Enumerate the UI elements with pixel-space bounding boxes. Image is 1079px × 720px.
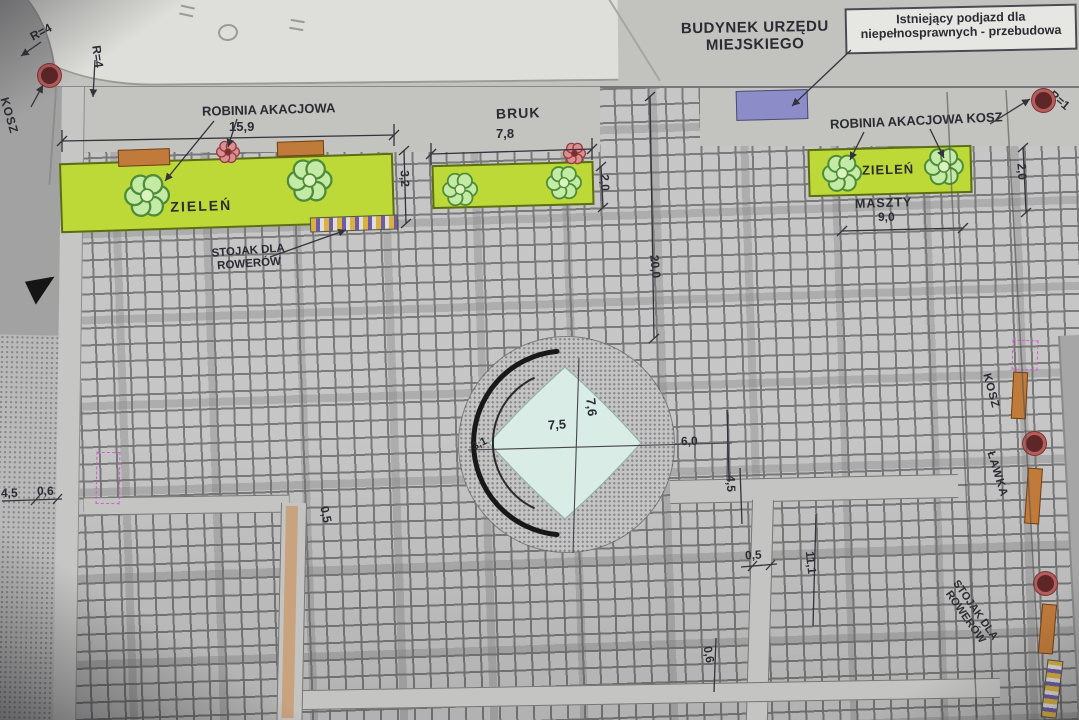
shrub-icon xyxy=(545,164,582,201)
dim-west-walk-b: 0,6 xyxy=(37,485,54,498)
bench xyxy=(1011,372,1028,420)
ramp-note-line2: niepełnosprawnych - przebudowa xyxy=(847,23,1075,42)
building-label: BUDYNEK URZĘDU MIEJSKIEGO xyxy=(660,18,851,54)
dim-plaza-depth: 20,0 xyxy=(647,254,663,279)
dim-pavement-length: 7,8 xyxy=(496,127,514,141)
shrub-icon xyxy=(923,146,964,187)
bike-rack-left-label: STOJAK DLA ROWERÓW xyxy=(211,242,286,272)
dim-east-bottom: 0,6 xyxy=(700,645,716,664)
bench xyxy=(118,148,171,167)
accessible-ramp xyxy=(736,89,809,121)
dim-west-path-edge: 0,5 xyxy=(317,505,333,524)
dim-tree-row-length: 15,9 xyxy=(229,120,254,134)
ramp-note: Istniejący podjazd dla niepełnosprawnych… xyxy=(845,4,1078,55)
building-label-line2: MIEJSKIEGO xyxy=(660,35,850,55)
dim-fountain-width: 7,5 xyxy=(548,417,567,433)
survey-mark xyxy=(1011,340,1038,371)
trash-bin-icon xyxy=(1023,432,1046,455)
tree-icon xyxy=(215,139,241,165)
greenery-right-label: ZIELEŃ xyxy=(862,162,915,178)
pavement-label: BRUK xyxy=(496,105,541,122)
tree-icon xyxy=(562,141,587,166)
building-facade-line xyxy=(600,86,1079,88)
dim-fountain-height: 7,6 xyxy=(583,397,599,416)
trash-bin-icon xyxy=(1034,572,1057,595)
dim-masts-spacing: 9,0 xyxy=(878,211,895,224)
shrub-icon xyxy=(822,153,863,194)
survey-mark xyxy=(96,452,121,504)
site-plan: 7,5 7,6 3,1 ZIELEŃ ZIELEŃ Istniejący pod… xyxy=(0,0,1079,720)
dim-green-right-width: 2,0 xyxy=(1014,163,1028,181)
dim-east-gap: 6,0 xyxy=(681,435,698,449)
dim-east-length: 11,1 xyxy=(803,551,818,575)
planting-bed-middle xyxy=(431,161,594,209)
bench xyxy=(277,140,324,157)
shrub-icon xyxy=(286,157,333,204)
greenery-left-label: ZIELEŃ xyxy=(170,198,232,215)
bike-rack xyxy=(310,214,398,232)
dim-west-walk-a: 4,5 xyxy=(1,487,18,500)
dim-curb-radius-b: R=4 xyxy=(89,45,105,69)
trash-bin-icon xyxy=(1032,89,1055,112)
trash-bin-icon xyxy=(38,64,61,87)
shrub-icon xyxy=(442,171,479,208)
planting-bed-right: ZIELEŃ xyxy=(807,145,972,197)
dim-east-edge: 0,5 xyxy=(745,549,762,563)
shrub-icon xyxy=(123,172,170,219)
dim-pavement-width: 2,0 xyxy=(597,174,611,191)
dim-east-path-width: 4,5 xyxy=(723,475,737,492)
dim-green-left-width: 3,2 xyxy=(397,170,411,187)
road-corner xyxy=(6,0,619,87)
